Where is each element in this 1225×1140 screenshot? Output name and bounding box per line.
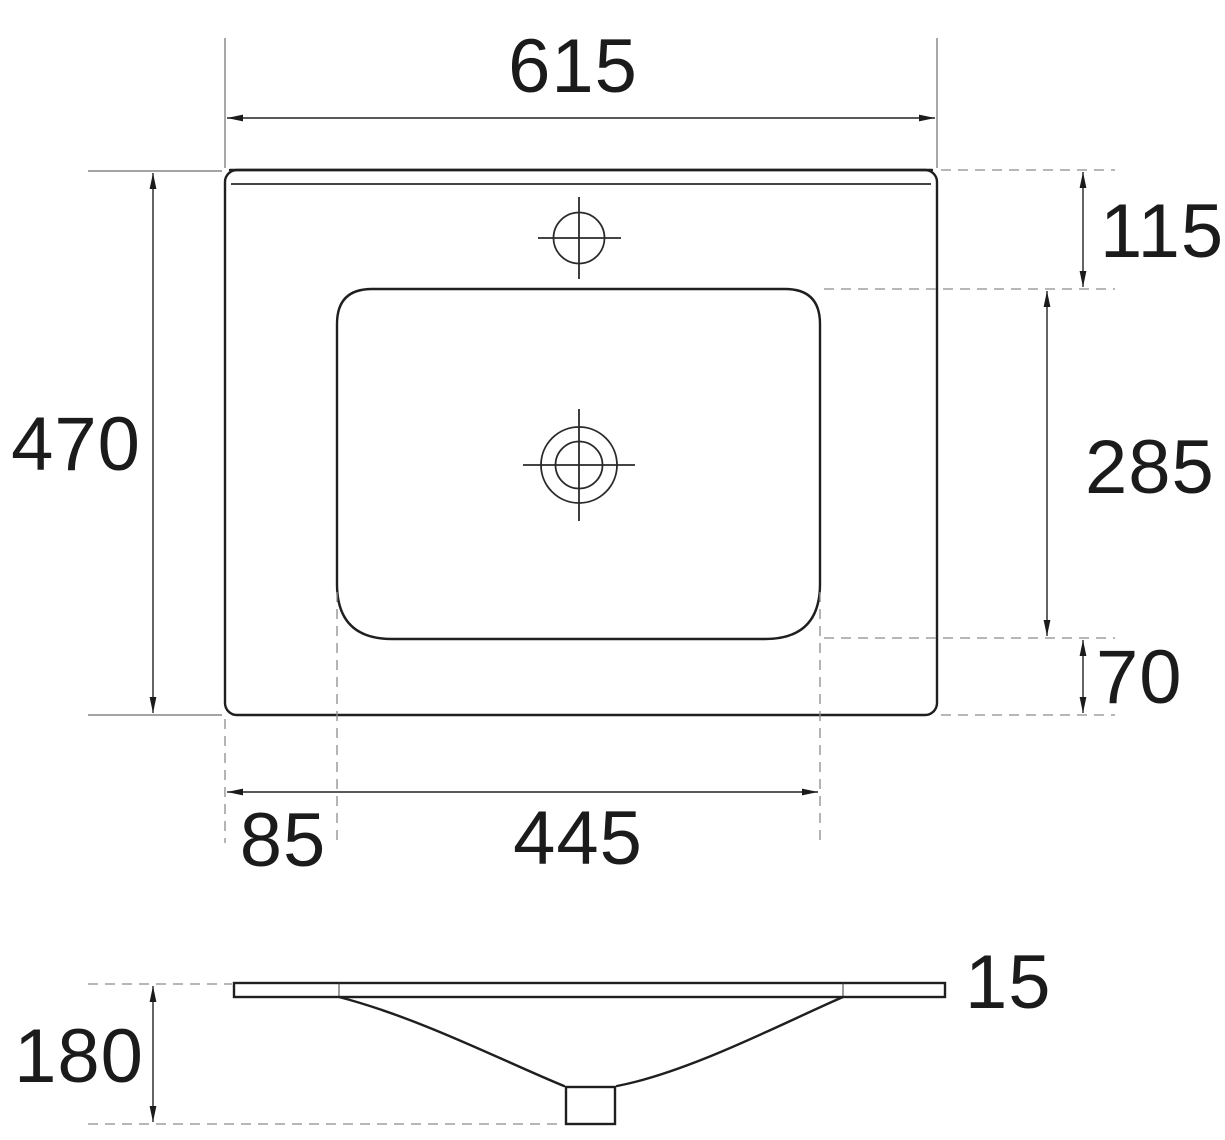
dim-label-offset-bottom: 70	[1096, 635, 1183, 720]
dimension-depth-180: 180	[14, 984, 564, 1124]
dim-label-basin-width: 445	[513, 796, 643, 881]
washbasin-dimension-diagram: 615 470 115 285 70	[0, 0, 1225, 1140]
drain-outlet-section	[566, 1087, 615, 1124]
dim-label-depth: 180	[14, 1014, 144, 1099]
dim-label-basin-height: 285	[1085, 425, 1215, 510]
dim-label-height: 470	[11, 402, 141, 487]
top-view	[225, 170, 937, 715]
dimension-height-470: 470	[11, 171, 222, 715]
dimension-thickness-15: 15	[965, 940, 1052, 1025]
basin-profile-right	[617, 997, 843, 1086]
sink-outer-outline	[225, 170, 937, 715]
dim-label-width: 615	[508, 24, 638, 109]
basin-profile-left	[339, 997, 564, 1086]
dim-label-thickness: 15	[965, 940, 1052, 1025]
dim-label-offset-top: 115	[1100, 189, 1224, 274]
technical-drawing-page: 615 470 115 285 70	[0, 0, 1225, 1140]
dimension-width-615: 615	[225, 24, 937, 168]
dimension-basin-height-285: 285	[1047, 291, 1215, 636]
dim-label-offset-left: 85	[240, 798, 327, 883]
rim-slab-section	[234, 983, 945, 997]
side-view	[234, 983, 945, 1124]
